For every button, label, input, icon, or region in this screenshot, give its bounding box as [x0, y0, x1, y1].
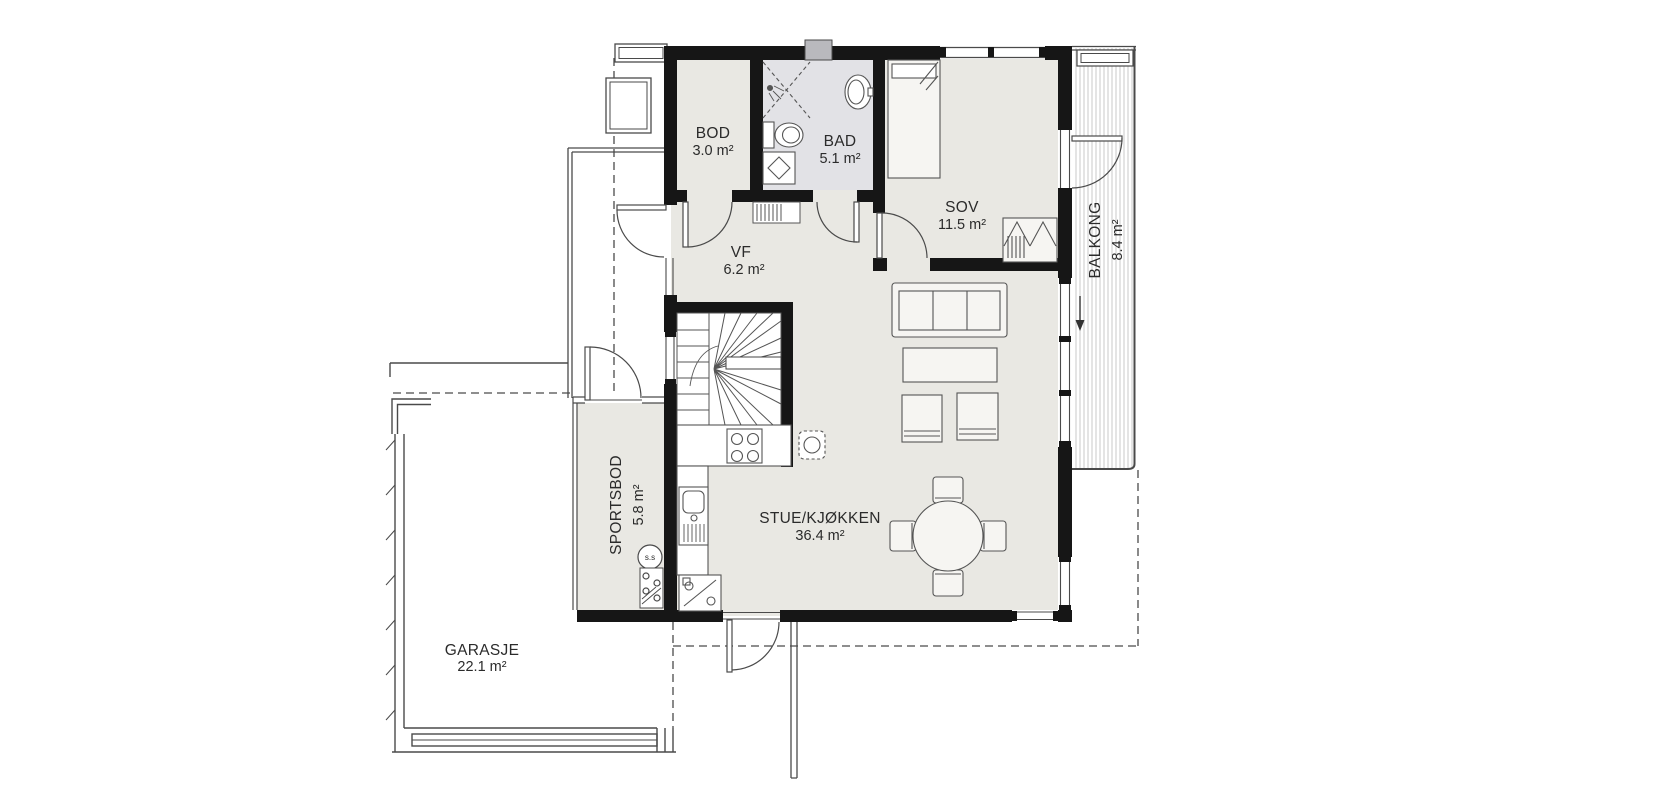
label-balkong: BALKONG	[1087, 201, 1104, 278]
label-sportsbod: SPORTSBOD	[608, 455, 625, 555]
dining-chair-top	[933, 477, 963, 503]
bed-pillow	[892, 64, 936, 78]
bathroom-window	[805, 40, 832, 60]
kitchen-sink	[679, 487, 708, 545]
wall-bad-sov-divider	[873, 60, 885, 213]
wall-bottom-1	[577, 610, 723, 622]
wall-right-1	[1058, 60, 1072, 130]
dining-window-right	[1058, 557, 1072, 610]
washing-machine	[763, 152, 795, 184]
wall-top-corner	[1045, 46, 1072, 60]
wall-right-2	[1058, 188, 1072, 278]
balcony-direction-arrow	[1076, 296, 1085, 331]
porch	[568, 44, 667, 398]
cooktop	[727, 429, 762, 463]
label-stue-kjokken: STUE/KJØKKEN	[759, 510, 881, 527]
wall-left-2	[664, 295, 677, 332]
toilet	[763, 122, 803, 148]
balcony-planter-box-inner	[1081, 54, 1129, 63]
dishwasher	[679, 575, 721, 611]
floor-plan-drawing: BOD 3.0 m² BAD 5.1 m² SOV 11.5 m² VF 6.2…	[0, 0, 1670, 800]
label-vf: VF	[731, 244, 751, 261]
label-garasje: GARASJE	[445, 642, 519, 659]
label-bad: BAD	[824, 133, 857, 150]
porch-wall-top	[568, 148, 664, 152]
label-bod: BOD	[696, 125, 731, 142]
sofa	[892, 283, 1007, 337]
vf-cabinet	[753, 202, 800, 223]
balcony-door-opening	[1058, 130, 1072, 188]
armchair-2	[957, 393, 998, 440]
garage-corner-top-left	[392, 399, 431, 434]
living-room-window-right	[1058, 278, 1072, 447]
porch-wall-left	[568, 148, 572, 398]
entry-door-left	[617, 205, 666, 257]
coffee-table	[903, 348, 997, 382]
label-sportsbod-area: 5.8 m²	[631, 484, 647, 525]
armchair-1	[902, 395, 942, 442]
wall-vf-mid	[732, 190, 813, 202]
wall-bottom-2	[780, 610, 1012, 622]
wardrobe	[1003, 218, 1057, 262]
stair-center-rail	[726, 357, 781, 369]
terrace-door-bottom	[723, 613, 780, 673]
site-line	[390, 363, 568, 377]
label-vf-area: 6.2 m²	[723, 262, 764, 278]
balcony	[1072, 46, 1136, 469]
utility-unit	[640, 568, 663, 608]
wall-top-1	[664, 46, 805, 60]
staircase	[677, 313, 781, 425]
wall-right-3	[1058, 447, 1072, 557]
label-bad-area: 5.1 m²	[819, 151, 860, 167]
dining-table	[913, 501, 983, 571]
bed	[888, 60, 940, 178]
label-balkong-area: 8.4 m²	[1110, 219, 1126, 260]
floor-plan-page: BOD 3.0 m² BAD 5.1 m² SOV 11.5 m² VF 6.2…	[0, 0, 1670, 800]
label-water-heater: s.s	[645, 553, 655, 562]
exterior-window-box-top-inner	[619, 48, 663, 59]
label-garasje-area: 22.1 m²	[457, 659, 506, 675]
wall-left-1	[664, 46, 677, 205]
bottom-window	[1012, 610, 1058, 622]
label-sov-area: 11.5 m²	[938, 217, 986, 233]
wall-left-3	[664, 384, 677, 612]
label-stue-kjokken-area: 36.4 m²	[795, 528, 844, 544]
label-bod-area: 3.0 m²	[692, 143, 733, 159]
bedroom-window-top	[940, 46, 1045, 59]
wall-top-2	[832, 46, 940, 60]
wall-bod-bad-divider	[750, 60, 763, 190]
wall-bottom-right-corner	[1058, 610, 1072, 622]
wall-vf-stub-left	[677, 190, 687, 202]
wall-sov-bottom-stub	[873, 258, 887, 271]
label-sov: SOV	[945, 199, 979, 216]
exterior-box-left-inner	[610, 82, 647, 129]
sportsbod-wall-left	[573, 397, 577, 610]
garage-wall-hatch-ticks	[386, 440, 395, 720]
vent-chimney	[799, 431, 825, 459]
wall-stair-top	[668, 302, 793, 313]
garage-wall-left	[395, 434, 404, 752]
stair-window-left	[664, 332, 677, 384]
